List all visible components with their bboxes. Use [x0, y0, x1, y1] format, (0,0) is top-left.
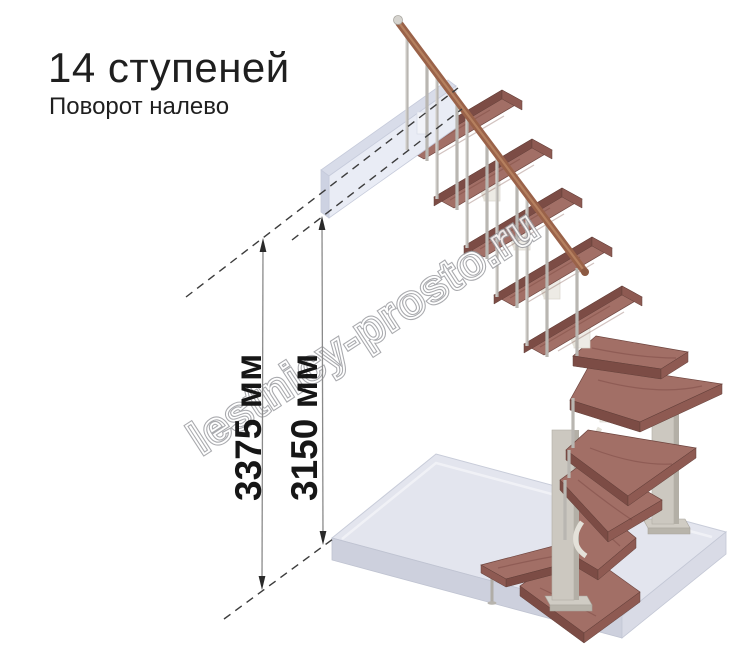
handrail-end-cap: [581, 268, 589, 276]
page-title: 14 ступеней: [48, 46, 290, 90]
handrail-top-ball: [394, 16, 403, 25]
page-subtitle: Поворот налево: [49, 93, 229, 121]
extension-line-floor: [224, 539, 333, 619]
dimension-label-3150: 3150 мм: [284, 354, 325, 501]
page-canvas: lestnicy-prosto.ru lestnicy-prosto.ru 33…: [0, 0, 743, 655]
dimension-label-3375: 3375 мм: [228, 354, 269, 501]
dimension-3150: 3150 мм: [284, 216, 326, 545]
dimension-3375: 3375 мм: [228, 238, 269, 590]
